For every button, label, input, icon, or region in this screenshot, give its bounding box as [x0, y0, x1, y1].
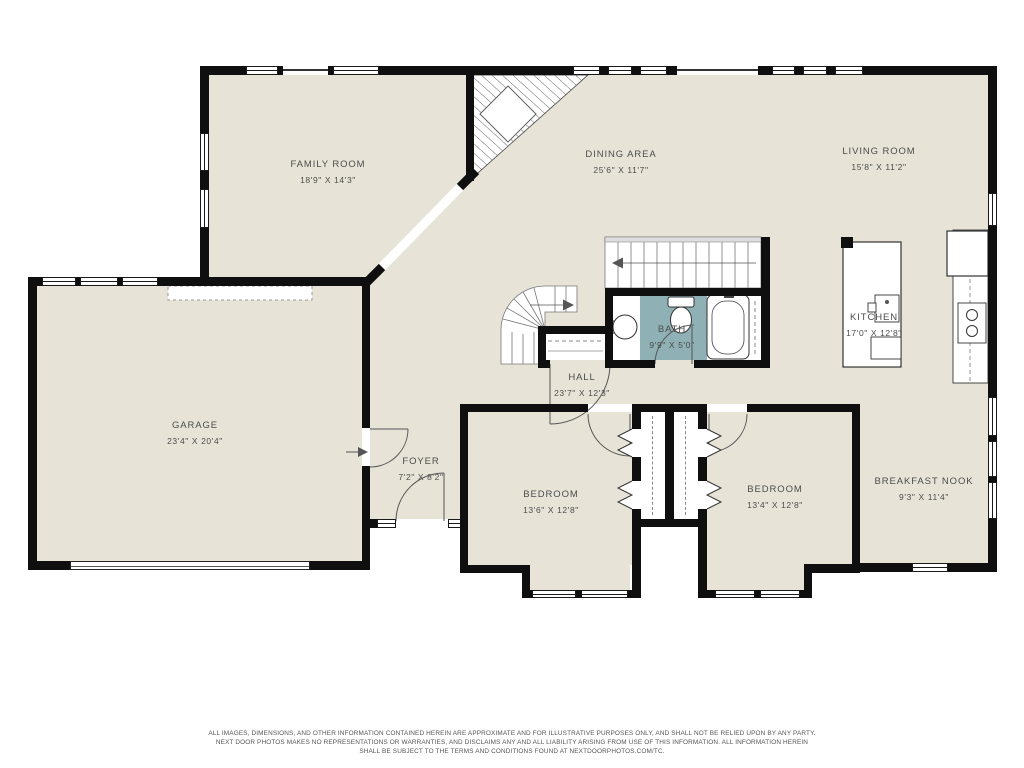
window	[608, 66, 632, 75]
room-name: BEDROOM	[523, 489, 579, 500]
window	[640, 66, 667, 75]
island-knob	[885, 300, 889, 304]
window	[912, 563, 948, 572]
entry-arrow-icon	[358, 447, 368, 457]
wall-top	[827, 66, 835, 75]
window	[988, 441, 997, 477]
room-dims: 25'6" X 11'7"	[585, 165, 656, 175]
window	[803, 66, 827, 75]
window	[715, 590, 755, 598]
room-label-kitchen: KITCHEN 17'0" X 12'8"	[846, 312, 902, 338]
window	[246, 66, 278, 75]
window-sill-line	[283, 69, 328, 71]
window	[772, 66, 795, 75]
window	[581, 590, 628, 598]
wall-left	[200, 66, 209, 133]
wall-top	[600, 66, 608, 75]
wall-bath-top	[605, 288, 761, 296]
window	[988, 482, 997, 519]
room-label-dining-area: DINING AREA 25'6" X 11'7"	[585, 149, 656, 175]
room-label-breakfast-nook: BREAKFAST NOOK 9'3" X 11'4"	[874, 476, 973, 502]
wall-closet	[698, 457, 707, 481]
room-dims: 17'0" X 12'8"	[846, 328, 902, 338]
room-dims: 9'3" X 11'4"	[874, 492, 973, 502]
room-name: LIVING ROOM	[842, 146, 915, 157]
wall-top	[758, 66, 772, 75]
window	[80, 277, 118, 286]
room-name: DINING AREA	[585, 149, 656, 160]
wall-bath-bottom	[694, 360, 761, 368]
room-dims: 15'8" X 11'2"	[842, 162, 915, 172]
room-dims: 13'4" X 12'8"	[747, 500, 803, 510]
wall-bed1-bottom	[460, 565, 522, 573]
kitchen-fixtures	[841, 230, 988, 383]
room-label-garage: GARAGE 23'4" X 20'4"	[167, 420, 223, 446]
room-name: GARAGE	[167, 420, 223, 431]
room-name: BEDROOM	[747, 484, 803, 495]
room-dims: 13'6" X 12'8"	[523, 505, 579, 515]
room-name: HALL	[554, 372, 610, 383]
wall-bedrooms-top	[747, 404, 860, 412]
wall-top	[863, 66, 997, 75]
room-name: FAMILY ROOM	[290, 159, 365, 170]
window	[122, 277, 158, 286]
room-label-living-room: LIVING ROOM 15'8" X 11'2"	[842, 146, 915, 172]
window-sill-line	[677, 69, 758, 71]
wall-closet	[698, 412, 707, 429]
hall-closet-shelves	[548, 341, 603, 351]
wall-nook-left	[852, 404, 860, 572]
toilet-tank	[668, 297, 694, 307]
window	[988, 397, 997, 436]
island-lower-tier	[871, 337, 901, 359]
window	[333, 66, 379, 75]
window	[200, 189, 209, 228]
diagonal-opening	[366, 171, 476, 283]
wall-closet	[665, 412, 674, 519]
room-name: BREAKFAST NOOK	[874, 476, 973, 487]
wall-left	[200, 171, 209, 189]
wall-bay1	[628, 590, 633, 598]
wall-bay1	[522, 590, 532, 598]
island-post	[841, 237, 853, 248]
wall-garage-top	[158, 277, 370, 286]
wall-closet-bottom	[632, 519, 707, 527]
wall-bay2	[707, 590, 715, 598]
room-label-bath: BATH 9'9" X 5'0"	[649, 324, 694, 350]
wall-bath-bottom	[605, 360, 655, 368]
window	[573, 66, 600, 75]
wall-top	[667, 66, 677, 75]
garage-door	[70, 561, 310, 570]
window	[988, 193, 997, 226]
room-label-bedroom-right: BEDROOM 13'4" X 12'8"	[747, 484, 803, 510]
window	[835, 66, 863, 75]
window	[42, 277, 76, 286]
room-dims: 7'2" X 8'2"	[398, 472, 443, 482]
room-label-hall: HALL 23'7" X 12'3"	[554, 372, 610, 398]
wall-nook-bottom	[852, 563, 912, 572]
wall-top	[795, 66, 803, 75]
room-dims: 18'9" X 14'3"	[290, 175, 365, 185]
wall-top	[632, 66, 640, 75]
staircase-main	[605, 237, 761, 288]
wall-closet	[632, 412, 641, 429]
bifold-left-2	[618, 481, 632, 509]
window	[200, 133, 209, 171]
bifold-right-2	[707, 481, 721, 509]
room-label-foyer: FOYER 7'2" X 8'2"	[398, 456, 443, 482]
room-dims: 23'4" X 20'4"	[167, 436, 223, 446]
room-name: FOYER	[398, 456, 443, 467]
wall-garage-right	[362, 466, 370, 570]
room-label-family-room: FAMILY ROOM 18'9" X 14'3"	[290, 159, 365, 185]
wall-garage-right	[362, 277, 370, 428]
window	[532, 590, 576, 598]
fireplace	[466, 73, 588, 181]
island-faucet	[868, 303, 876, 312]
wall-right	[988, 66, 997, 193]
wall-bedrooms-top	[632, 404, 707, 412]
room-label-bedroom-left: BEDROOM 13'6" X 12'8"	[523, 489, 579, 515]
wall-bedroom-left-side	[460, 404, 468, 573]
closet-rod	[685, 416, 686, 515]
bathtub	[707, 295, 749, 359]
closet-rod	[652, 416, 653, 515]
bath-sink	[613, 315, 637, 339]
wall-nook-bottom	[948, 563, 997, 572]
wall-bedrooms-top	[460, 404, 588, 412]
wall-hall-closet	[538, 326, 613, 334]
room-name: BATH	[649, 324, 694, 335]
window	[377, 519, 396, 528]
wall-closet	[632, 457, 641, 481]
room-dims: 9'9" X 5'0"	[649, 340, 694, 350]
window	[760, 590, 800, 598]
wall-garage-bottom	[310, 561, 370, 570]
wall-garage-left	[28, 277, 37, 570]
wall-hall-closet	[538, 360, 550, 368]
wall-top	[379, 66, 573, 75]
plan-graphics	[0, 0, 1024, 768]
room-name: KITCHEN	[846, 312, 902, 323]
refrigerator	[947, 231, 988, 276]
floor-plan-canvas: FAMILY ROOM 18'9" X 14'3" DINING AREA 25…	[0, 0, 1024, 768]
garage-storage	[168, 286, 312, 300]
room-dims: 23'7" X 12'3"	[554, 388, 610, 398]
wall-garage-bottom	[28, 561, 70, 570]
wall-right	[988, 226, 997, 397]
wall-foyer	[370, 519, 377, 528]
wall-stair-right	[761, 237, 770, 368]
